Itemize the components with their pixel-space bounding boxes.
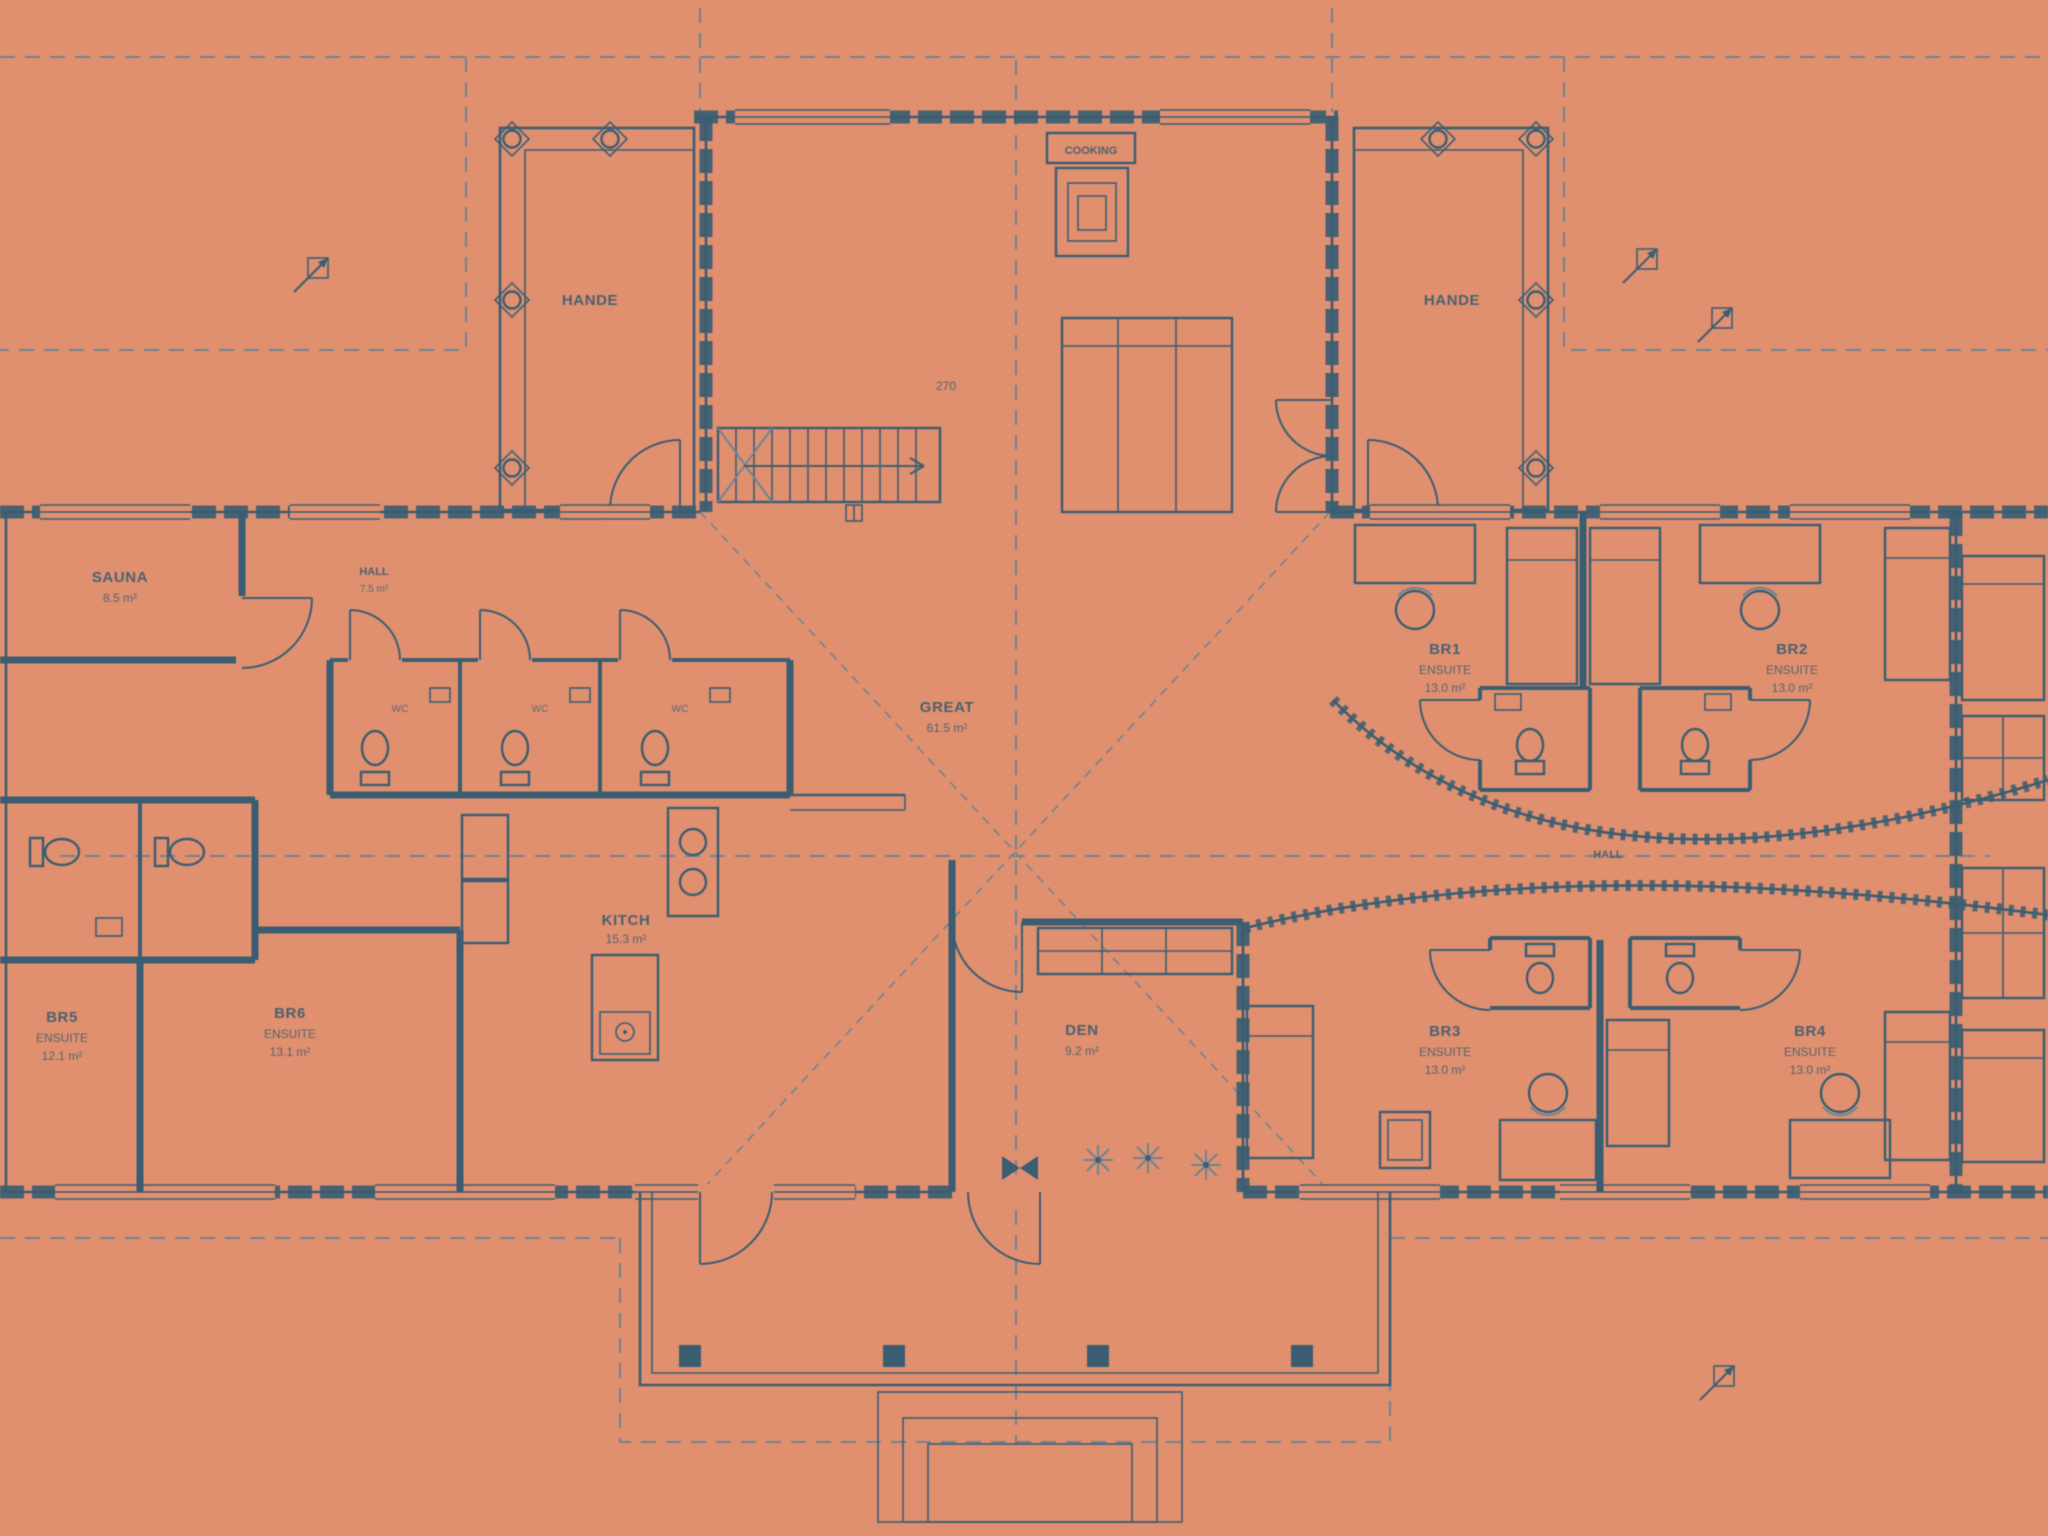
stove-peninsula-icon bbox=[668, 808, 718, 916]
sauna-label: SAUNA bbox=[92, 569, 148, 586]
suite-br4: BR4 ENSUITE 13.0 m² bbox=[1607, 938, 1950, 1178]
hall-left-label: HALL bbox=[359, 566, 389, 578]
plant-icon bbox=[1083, 1143, 1221, 1180]
room-den: DEN 9.2 m² bbox=[952, 860, 1243, 1192]
kitchen-area: 15.3 m² bbox=[606, 932, 647, 946]
double-door bbox=[1276, 400, 1332, 512]
fridge-icon bbox=[462, 815, 508, 879]
porch-steps bbox=[878, 1392, 1182, 1522]
curved-wall bbox=[1245, 885, 2048, 928]
chair bbox=[1396, 591, 1434, 629]
window bbox=[735, 110, 890, 124]
wing-right: HALL BR1 ENSUITE 13.0 m² bbox=[1243, 505, 2048, 1199]
door-arc bbox=[968, 1192, 1040, 1264]
door-arc bbox=[242, 598, 312, 668]
br5-area: 12.1 m² bbox=[42, 1049, 83, 1063]
staircase: 270 bbox=[718, 379, 956, 521]
br4-label: BR4 bbox=[1794, 1023, 1826, 1040]
door-arc bbox=[620, 610, 670, 660]
hall-right-label: HALL bbox=[1593, 849, 1623, 861]
room-kitchen: KITCH 15.3 m² bbox=[462, 795, 905, 1060]
bed bbox=[1885, 528, 1950, 680]
great-label: GREAT bbox=[920, 699, 974, 716]
door-arc bbox=[350, 610, 400, 660]
br4-area: 13.0 m² bbox=[1790, 1063, 1831, 1077]
br2-label: BR2 bbox=[1776, 641, 1808, 658]
kitchen-island-icon bbox=[592, 955, 658, 1060]
br3-suffix: ENSUITE bbox=[1419, 1045, 1471, 1059]
ensuite bbox=[1630, 938, 1800, 1010]
desk bbox=[1790, 1120, 1890, 1178]
br1-label: BR1 bbox=[1429, 641, 1461, 658]
curved-wall bbox=[1333, 700, 2048, 839]
suite-br3: BR3 ENSUITE 13.0 m² bbox=[1247, 938, 1596, 1180]
door-arc bbox=[480, 610, 530, 660]
chair bbox=[1741, 591, 1779, 629]
br4-suffix: ENSUITE bbox=[1784, 1045, 1836, 1059]
br3-area: 13.0 m² bbox=[1425, 1063, 1466, 1077]
desk bbox=[1700, 525, 1820, 583]
fireplace-icon: COOKING bbox=[1047, 133, 1135, 256]
wc-cluster bbox=[0, 800, 255, 960]
room-sauna: SAUNA 8.5 m² bbox=[0, 512, 312, 670]
bed bbox=[1590, 528, 1660, 684]
ensuite bbox=[1640, 688, 1810, 790]
door-arc bbox=[1750, 700, 1810, 760]
br5-label: BR5 bbox=[46, 1009, 78, 1026]
door-arc bbox=[1420, 700, 1480, 760]
floor-plan-blueprint: COOKING 270 bbox=[0, 0, 2048, 1536]
br1-suffix: ENSUITE bbox=[1419, 663, 1471, 677]
hearth-label: COOKING bbox=[1065, 145, 1118, 157]
toilet-icon bbox=[1682, 729, 1708, 761]
closet-row-icon bbox=[1038, 928, 1232, 974]
bed bbox=[1247, 1006, 1313, 1158]
door-arc bbox=[1368, 440, 1438, 510]
window bbox=[1160, 110, 1310, 124]
br6-suffix: ENSUITE bbox=[264, 1027, 316, 1041]
toilet-icon bbox=[30, 838, 204, 866]
br6-area: 13.1 m² bbox=[270, 1045, 311, 1059]
door-arc bbox=[610, 440, 680, 510]
ensuite bbox=[1430, 938, 1590, 1010]
kitchen-label: KITCH bbox=[602, 912, 651, 929]
bed bbox=[1062, 318, 1232, 512]
section-marker-icon bbox=[294, 249, 1734, 1400]
bed bbox=[1507, 528, 1577, 684]
wing-left: SAUNA 8.5 m² HALL 7.5 m² bbox=[0, 505, 952, 1199]
chair bbox=[1821, 1074, 1859, 1112]
br1-area: 13.0 m² bbox=[1425, 681, 1466, 695]
toilet-icon bbox=[1667, 963, 1693, 993]
chair bbox=[1529, 1074, 1567, 1112]
wc-label: WC bbox=[392, 704, 409, 715]
sink-icon bbox=[1705, 694, 1731, 710]
br3-label: BR3 bbox=[1429, 1023, 1461, 1040]
wc-band: WC WC WC bbox=[330, 610, 790, 795]
porch-left-label: HANDE bbox=[562, 292, 618, 309]
door-arc bbox=[1430, 950, 1490, 1010]
suite-br2: BR2 ENSUITE 13.0 m² bbox=[1590, 525, 1950, 790]
column-icon bbox=[679, 1345, 1313, 1367]
br2-suffix: ENSUITE bbox=[1766, 663, 1818, 677]
bed bbox=[1607, 1020, 1669, 1146]
door-arc bbox=[1740, 950, 1800, 1010]
porch-bottom bbox=[640, 1184, 1390, 1522]
toilet-icon bbox=[361, 731, 669, 785]
room-great: GREAT 61.5 m² bbox=[920, 699, 974, 735]
sink-icon bbox=[430, 688, 730, 702]
sink-icon bbox=[96, 918, 122, 936]
roof-dashed-lines bbox=[0, 8, 2048, 1442]
wc-label: WC bbox=[532, 704, 549, 715]
cabinet-icon bbox=[462, 881, 508, 943]
edge-fixtures bbox=[1962, 556, 2044, 1162]
toilet-icon bbox=[1517, 729, 1543, 761]
sink-icon bbox=[1495, 694, 1521, 710]
sauna-area: 8.5 m² bbox=[103, 591, 137, 605]
great-area: 61.5 m² bbox=[927, 721, 968, 735]
porch-top-left: HANDE bbox=[495, 122, 694, 521]
section-bowtie-icon bbox=[1002, 1156, 1038, 1180]
stair-rise-label: 270 bbox=[936, 379, 956, 393]
porch-right-label: HANDE bbox=[1424, 292, 1480, 309]
room-bedroom-left: BR5 ENSUITE 12.1 m² BR6 ENSUITE 13.1 m² bbox=[36, 930, 460, 1192]
desk bbox=[1355, 525, 1475, 583]
porch-top-right: HANDE bbox=[1354, 122, 1553, 521]
toilet-icon bbox=[1527, 963, 1553, 993]
den-area: 9.2 m² bbox=[1065, 1044, 1099, 1058]
door-arc bbox=[952, 922, 1022, 992]
br2-area: 13.0 m² bbox=[1772, 681, 1813, 695]
door-arc bbox=[700, 1192, 772, 1264]
den-label: DEN bbox=[1065, 1022, 1098, 1039]
ensuite bbox=[1420, 688, 1590, 790]
wc-label: WC bbox=[672, 704, 689, 715]
br6-label: BR6 bbox=[274, 1005, 306, 1022]
bed bbox=[1885, 1012, 1950, 1160]
br5-suffix: ENSUITE bbox=[36, 1031, 88, 1045]
hall-left-area: 7.5 m² bbox=[360, 584, 389, 595]
desk bbox=[1500, 1120, 1596, 1180]
